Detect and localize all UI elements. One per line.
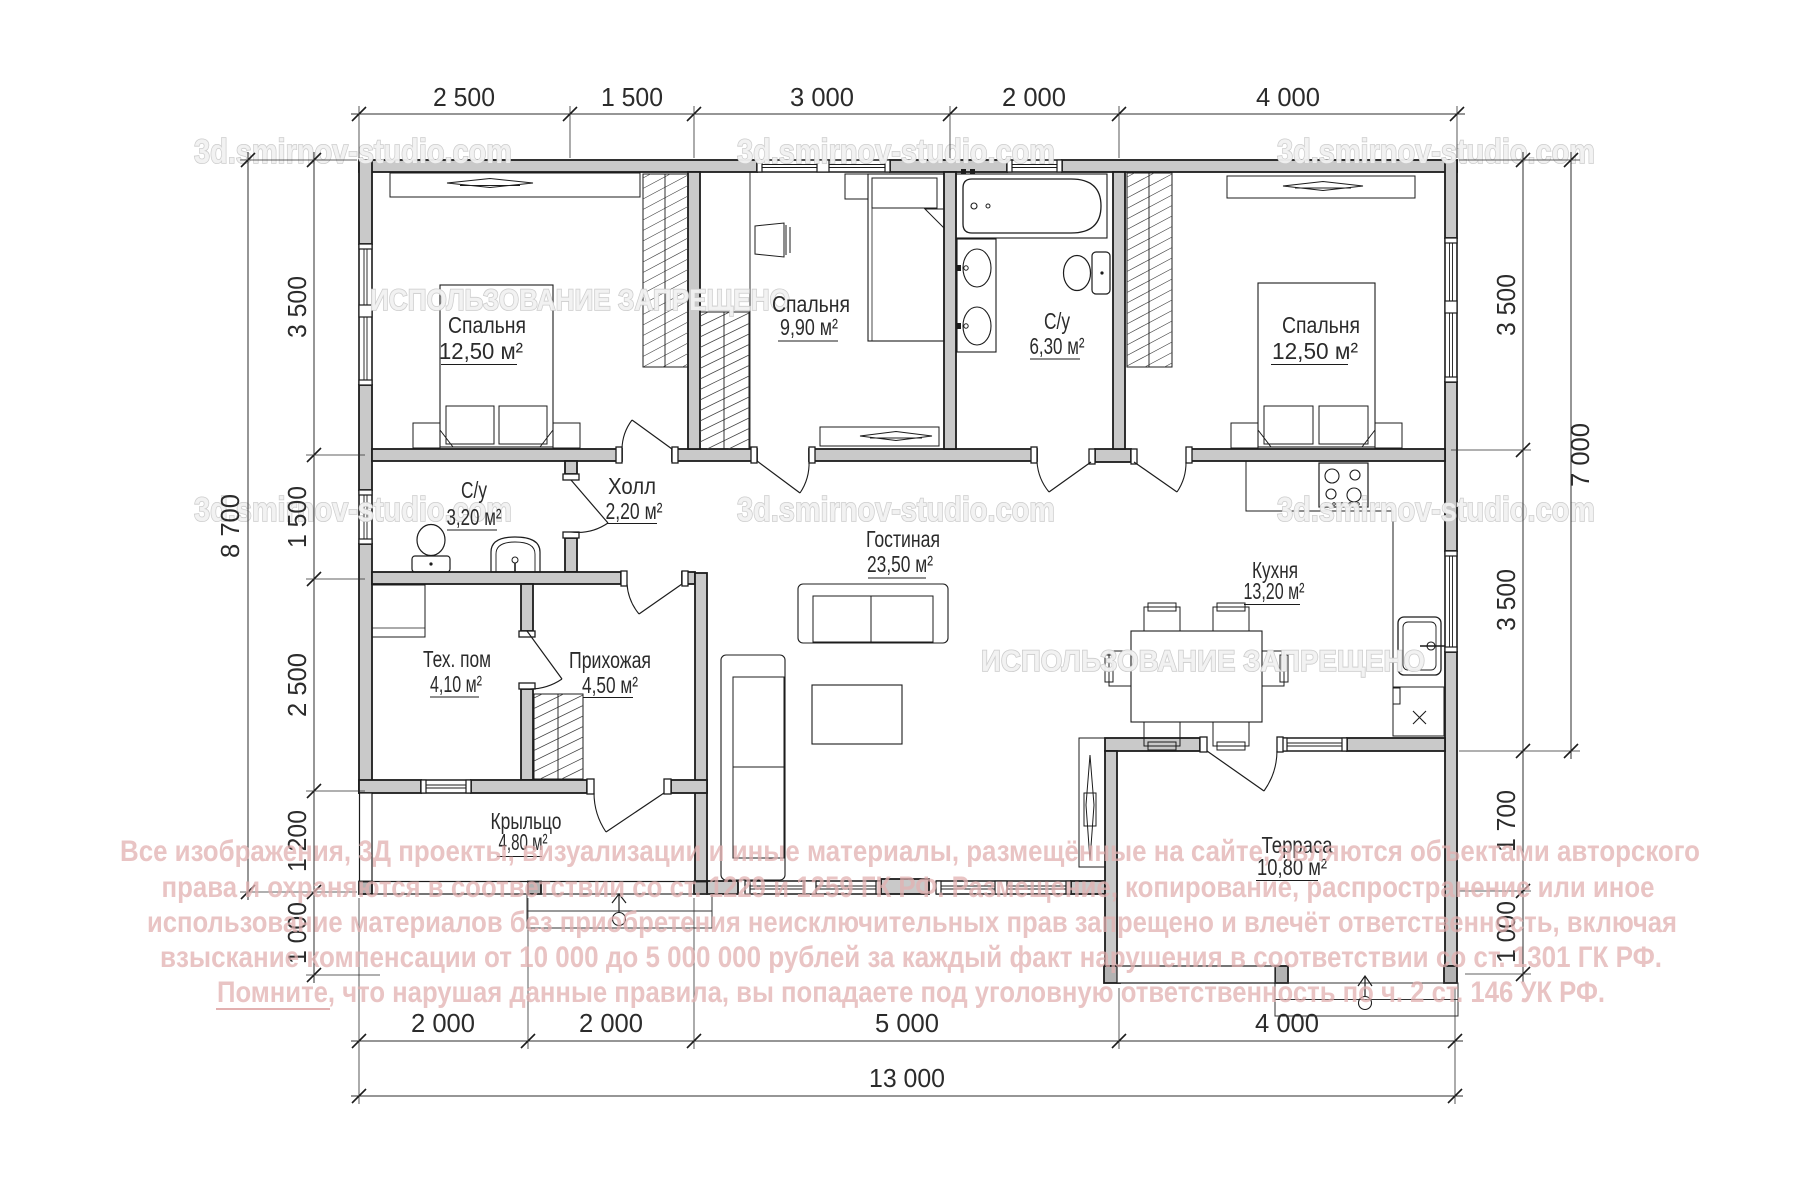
svg-text:13 000: 13 000	[869, 1063, 945, 1093]
svg-text:Помните, что нарушая данные пр: Помните, что нарушая данные правила, вы …	[217, 976, 1605, 1009]
svg-text:ИСПОЛЬЗОВАНИЕ ЗАПРЕЩЕНО: ИСПОЛЬЗОВАНИЕ ЗАПРЕЩЕНО	[370, 284, 790, 317]
svg-text:6,30 м²: 6,30 м²	[1030, 333, 1085, 359]
svg-text:1 500: 1 500	[601, 82, 663, 112]
svg-text:3 500: 3 500	[1491, 569, 1521, 631]
svg-text:4 000: 4 000	[1256, 82, 1320, 112]
svg-text:9,90 м²: 9,90 м²	[780, 314, 838, 340]
svg-text:12,50 м²: 12,50 м²	[1272, 338, 1358, 364]
svg-text:3d.smirnov-studio.com: 3d.smirnov-studio.com	[1277, 133, 1595, 171]
svg-text:2 000: 2 000	[1002, 82, 1066, 112]
svg-text:Гостиная: Гостиная	[866, 526, 940, 552]
svg-text:Спальня: Спальня	[1282, 312, 1360, 338]
svg-text:3 500: 3 500	[282, 276, 312, 338]
svg-text:2 000: 2 000	[411, 1008, 475, 1038]
svg-text:2 500: 2 500	[282, 653, 312, 717]
svg-text:1 500: 1 500	[282, 486, 312, 548]
svg-text:3,20 м²: 3,20 м²	[447, 504, 502, 530]
svg-text:4 000: 4 000	[1255, 1008, 1319, 1038]
svg-text:С/у: С/у	[1044, 308, 1070, 334]
svg-text:Все изображения, 3Д проекты, в: Все изображения, 3Д проекты, визуализаци…	[120, 835, 1700, 868]
svg-text:ИСПОЛЬЗОВАНИЕ ЗАПРЕЩЕНО: ИСПОЛЬЗОВАНИЕ ЗАПРЕЩЕНО	[981, 645, 1425, 678]
svg-text:Тех. пом: Тех. пом	[423, 646, 491, 672]
svg-text:5 000: 5 000	[875, 1008, 939, 1038]
svg-text:2 500: 2 500	[433, 82, 495, 112]
svg-text:Прихожая: Прихожая	[569, 647, 651, 673]
svg-text:4,50 м²: 4,50 м²	[582, 672, 638, 698]
svg-text:23,50 м²: 23,50 м²	[867, 551, 933, 577]
svg-text:3 500: 3 500	[1491, 274, 1521, 336]
svg-text:3 000: 3 000	[790, 82, 854, 112]
svg-text:Спальня: Спальня	[448, 312, 526, 338]
svg-text:7 000: 7 000	[1565, 423, 1595, 487]
svg-text:взыскание компенсации от 10 00: взыскание компенсации от 10 000 до 5 000…	[160, 941, 1662, 974]
svg-text:4,10 м²: 4,10 м²	[430, 671, 482, 697]
svg-text:3d.smirnov-studio.com: 3d.smirnov-studio.com	[737, 133, 1055, 171]
svg-text:3d.smirnov-studio.com: 3d.smirnov-studio.com	[737, 491, 1055, 529]
svg-text:3d.smirnov-studio.com: 3d.smirnov-studio.com	[1277, 491, 1595, 529]
svg-text:13,20 м²: 13,20 м²	[1244, 578, 1305, 604]
svg-text:12,50 м²: 12,50 м²	[439, 338, 523, 364]
svg-text:использование материалов без п: использование материалов без приобретени…	[147, 906, 1677, 939]
svg-text:8 700: 8 700	[215, 494, 245, 558]
svg-text:2,20 м²: 2,20 м²	[606, 498, 663, 524]
svg-text:права и охраняются в соответст: права и охраняются в соответствии со ст.…	[162, 871, 1655, 904]
svg-text:С/у: С/у	[461, 477, 487, 503]
svg-text:Холл: Холл	[608, 473, 656, 499]
svg-text:2 000: 2 000	[579, 1008, 643, 1038]
